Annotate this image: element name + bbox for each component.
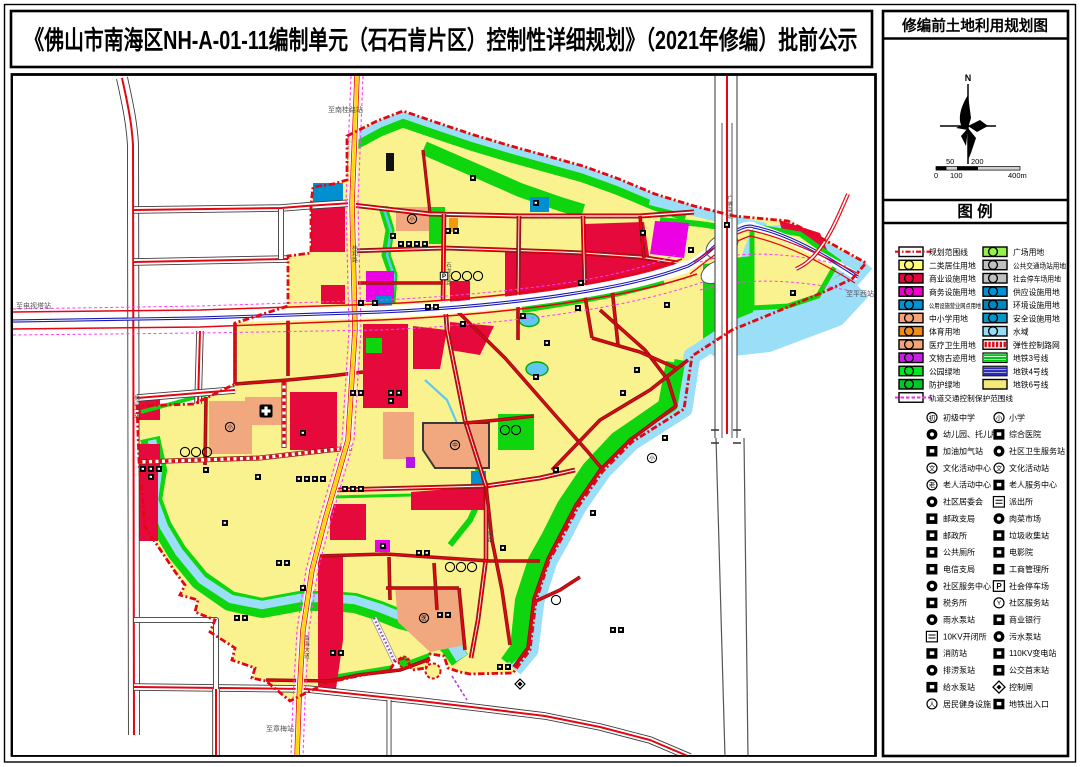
svg-text:公共厕所: 公共厕所 [943,547,975,557]
svg-text:小: 小 [996,413,1003,422]
svg-text:地铁6号线: 地铁6号线 [1013,380,1049,390]
svg-text:地铁4号线: 地铁4号线 [1013,366,1049,376]
svg-text:至南桂路站: 至南桂路站 [328,105,363,114]
svg-text:10KV开闭所: 10KV开闭所 [943,631,987,641]
svg-text:电信支局: 电信支局 [943,564,975,574]
svg-text:文化活动中心: 文化活动中心 [943,463,991,473]
svg-text:0: 0 [934,171,938,180]
svg-text:公交首末站: 公交首末站 [1009,665,1049,675]
svg-text:公用设施营业网点用地: 公用设施营业网点用地 [929,301,981,310]
svg-text:社会停车场用地: 社会停车场用地 [1013,275,1061,284]
svg-text:N: N [965,73,972,83]
svg-text:《佛山市南海区NH-A-01-11编制单元（石石肯片区）控制: 《佛山市南海区NH-A-01-11编制单元（石石肯片区）控制性详细规划》（202… [25,26,858,55]
svg-text:文: 文 [929,463,936,472]
svg-text:地铁出入口: 地铁出入口 [1009,699,1049,709]
svg-text:200: 200 [971,157,984,166]
svg-text:供应设施用地: 供应设施用地 [1013,287,1060,297]
svg-text:社区服务中心: 社区服务中心 [943,581,991,591]
svg-text:消防站: 消防站 [943,648,967,658]
svg-text:幼儿园、托儿所: 幼儿园、托儿所 [943,429,999,439]
svg-text:50: 50 [946,157,954,166]
svg-text:污水泵站: 污水泵站 [1009,631,1041,641]
svg-text:人: 人 [929,700,936,708]
svg-text:初级中学: 初级中学 [943,412,975,422]
svg-text:二类居住用地: 二类居住用地 [929,260,976,270]
svg-text:Y: Y [997,600,1002,607]
svg-text:社区服务站: 社区服务站 [1009,598,1049,608]
svg-text:广佛高速: 广佛高速 [726,194,733,220]
svg-text:垃圾收集站: 垃圾收集站 [1009,530,1049,540]
svg-text:文物古迹用地: 文物古迹用地 [929,353,976,363]
svg-text:至电视塔站: 至电视塔站 [16,301,51,310]
svg-text:中小学用地: 中小学用地 [929,313,968,323]
svg-text:雨水泵站: 雨水泵站 [943,615,975,625]
svg-text:社会停车场: 社会停车场 [1009,581,1049,591]
svg-text:控制闸: 控制闸 [1009,682,1033,692]
svg-text:小: 小 [649,454,655,462]
svg-text:110KV变电站: 110KV变电站 [1009,648,1056,658]
svg-text:环境设施用地: 环境设施用地 [1013,300,1060,310]
svg-text:图 例: 图 例 [957,202,992,221]
svg-text:规划范围线: 规划范围线 [929,247,968,257]
svg-text:小: 小 [227,423,233,431]
svg-text:P: P [996,582,1002,591]
svg-text:排涝泵站: 排涝泵站 [943,665,975,675]
svg-text:老人服务中心: 老人服务中心 [1009,480,1057,490]
svg-text:文化活动站: 文化活动站 [1009,463,1049,473]
svg-text:电影院: 电影院 [1009,547,1033,557]
svg-text:税务所: 税务所 [943,598,967,608]
svg-text:老: 老 [929,480,936,489]
svg-text:体育用地: 体育用地 [929,327,960,337]
svg-text:防护绿地: 防护绿地 [929,380,960,390]
svg-text:广场用地: 广场用地 [1013,247,1044,257]
svg-text:社区卫生服务站: 社区卫生服务站 [1009,446,1065,456]
svg-text:小学: 小学 [1009,412,1025,422]
svg-text:综合医院: 综合医院 [1009,429,1041,439]
svg-text:400m: 400m [1008,171,1027,180]
svg-text:中: 中 [452,441,458,449]
svg-text:水域: 水域 [1013,327,1029,337]
svg-text:给水泵站: 给水泵站 [943,682,975,692]
svg-text:100: 100 [950,171,963,180]
svg-text:派出所: 派出所 [1009,497,1033,507]
svg-text:医疗卫生用地: 医疗卫生用地 [929,340,976,350]
svg-text:至章梅站: 至章梅站 [266,724,294,733]
svg-text:弹性控制路网: 弹性控制路网 [1013,340,1060,350]
svg-text:至平西站: 至平西站 [846,289,874,298]
svg-text:修编前土地利用规划图: 修编前土地利用规划图 [901,17,1048,35]
svg-text:老人活动中心: 老人活动中心 [943,480,991,490]
svg-text:医: 医 [421,615,427,622]
svg-text:商务设施用地: 商务设施用地 [929,287,976,297]
svg-text:工商管理所: 工商管理所 [1009,564,1049,574]
svg-text:地铁3号线: 地铁3号线 [1013,353,1049,363]
svg-text:小: 小 [409,215,415,223]
svg-text:社区居委会: 社区居委会 [943,497,983,507]
svg-text:石龙北路: 石龙北路 [445,262,452,287]
svg-text:桂和路: 桂和路 [351,244,358,264]
svg-text:轨道交通控制保护范围线: 轨道交通控制保护范围线 [929,393,1013,403]
svg-text:公共交通场站用地: 公共交通场站用地 [1013,261,1066,270]
svg-text:佛山一环: 佛山一环 [133,394,140,420]
svg-text:安全设施用地: 安全设施用地 [1013,313,1060,323]
svg-text:广佛路: 广佛路 [486,524,493,544]
svg-text:商业设施用地: 商业设施用地 [929,274,976,284]
svg-text:商业银行: 商业银行 [1009,615,1041,625]
svg-text:邮政支局: 邮政支局 [943,513,975,523]
svg-text:居民健身设施: 居民健身设施 [943,699,991,709]
svg-text:文: 文 [996,463,1003,472]
svg-text:肉菜市场: 肉菜市场 [1009,513,1041,523]
svg-text:加油加气站: 加油加气站 [943,446,983,456]
svg-text:公园绿地: 公园绿地 [929,366,960,376]
svg-text:邮政所: 邮政所 [943,530,967,540]
svg-text:初: 初 [929,413,936,422]
svg-text:南海大道: 南海大道 [303,634,310,660]
